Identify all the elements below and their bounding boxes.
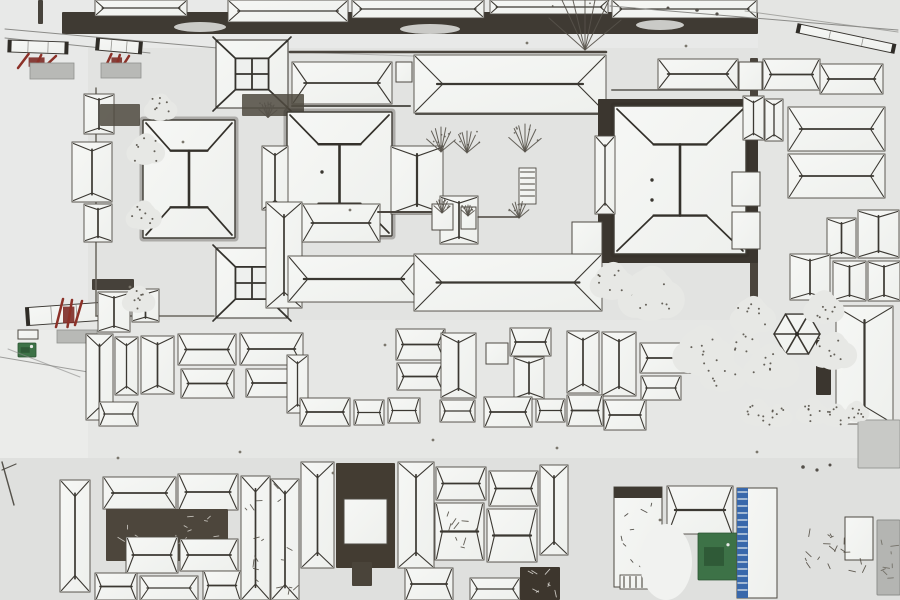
branch-speckle bbox=[828, 350, 830, 352]
branch-speckle bbox=[829, 411, 831, 413]
snow-patch bbox=[400, 24, 460, 34]
footprint bbox=[432, 439, 435, 442]
twig-dot bbox=[467, 144, 469, 146]
twig-dot bbox=[459, 141, 461, 143]
house-roof bbox=[180, 539, 238, 571]
branch-speckle bbox=[830, 355, 832, 357]
house-roof bbox=[95, 573, 137, 600]
ellipse bbox=[636, 20, 684, 30]
footprint bbox=[129, 286, 132, 289]
footprint bbox=[239, 451, 242, 454]
rect bbox=[486, 343, 508, 364]
branch-speckle bbox=[713, 380, 715, 382]
rect bbox=[101, 63, 141, 78]
branch-speckle bbox=[703, 362, 705, 364]
branch-speckle bbox=[702, 354, 704, 356]
canopy bbox=[819, 337, 837, 355]
rect bbox=[38, 0, 43, 24]
house-roof bbox=[103, 477, 176, 509]
house-roof bbox=[567, 395, 603, 426]
house-roof bbox=[300, 398, 350, 426]
twig-dot bbox=[269, 107, 271, 109]
footprint bbox=[685, 45, 688, 48]
east-hall-porch-roof bbox=[595, 136, 615, 214]
branch-speckle bbox=[852, 408, 854, 410]
twig bbox=[667, 7, 670, 10]
rect bbox=[732, 212, 760, 249]
branch-speckle bbox=[772, 353, 774, 355]
branch-speckle bbox=[753, 371, 755, 373]
branch-speckle bbox=[758, 312, 760, 314]
twig bbox=[829, 464, 832, 467]
twig-dot bbox=[444, 136, 446, 138]
house-roof bbox=[140, 576, 198, 600]
twig-dot bbox=[463, 207, 465, 209]
branch-speckle bbox=[833, 408, 835, 410]
branch-speckle bbox=[745, 336, 747, 338]
branch-speckle bbox=[819, 410, 821, 412]
branch-speckle bbox=[816, 315, 818, 317]
branch-speckle bbox=[734, 347, 736, 349]
twig-dot bbox=[461, 205, 463, 207]
house-roof bbox=[732, 172, 760, 206]
snow-dot bbox=[30, 345, 33, 348]
house-roof bbox=[484, 397, 532, 427]
snow-patch bbox=[174, 22, 226, 32]
dot bbox=[695, 8, 699, 12]
gray-structure bbox=[877, 520, 900, 595]
snow-mound bbox=[640, 524, 692, 600]
house-roof bbox=[602, 332, 636, 396]
branch-speckle bbox=[808, 405, 810, 407]
twig bbox=[715, 12, 718, 15]
line bbox=[204, 521, 207, 522]
dot bbox=[526, 42, 529, 45]
branch-speckle bbox=[152, 98, 154, 100]
long-hall-roof bbox=[414, 254, 602, 311]
branch-speckle bbox=[737, 307, 739, 309]
branch-speckle bbox=[614, 274, 616, 276]
branch-speckle bbox=[598, 282, 600, 284]
footprint bbox=[556, 447, 559, 450]
branch-speckle bbox=[747, 411, 749, 413]
hall-roof bbox=[658, 59, 738, 89]
house-roof bbox=[398, 462, 434, 568]
canopy bbox=[738, 301, 756, 319]
branch-speckle bbox=[136, 290, 138, 292]
house-roof bbox=[540, 465, 568, 555]
branch-speckle bbox=[136, 308, 138, 310]
branch-speckle bbox=[848, 417, 850, 419]
dot bbox=[685, 45, 688, 48]
branch-speckle bbox=[746, 311, 748, 313]
twig-dot bbox=[514, 210, 516, 212]
branch-speckle bbox=[837, 340, 839, 342]
branch-speckle bbox=[711, 339, 713, 341]
house-roof bbox=[868, 261, 900, 301]
house-roof bbox=[115, 337, 138, 395]
branch-speckle bbox=[751, 338, 753, 340]
dark-roof bbox=[520, 567, 560, 600]
dot bbox=[667, 7, 670, 10]
wall-segment bbox=[92, 279, 134, 290]
small-roof bbox=[739, 62, 762, 90]
shed bbox=[352, 562, 372, 586]
branch-speckle bbox=[860, 413, 862, 415]
house-roof bbox=[178, 474, 238, 510]
rect bbox=[64, 42, 68, 54]
branch-speckle bbox=[708, 370, 710, 372]
branch-speckle bbox=[840, 358, 842, 360]
house-roof bbox=[487, 509, 537, 562]
house-roof bbox=[126, 537, 178, 573]
footprint bbox=[349, 209, 352, 212]
dot bbox=[117, 457, 120, 460]
roof-edge bbox=[614, 487, 662, 498]
branch-speckle bbox=[818, 337, 820, 339]
dot bbox=[815, 468, 818, 471]
branch-speckle bbox=[809, 420, 811, 422]
dot bbox=[829, 464, 832, 467]
branch-speckle bbox=[715, 385, 717, 387]
house-roof bbox=[765, 99, 783, 141]
rect bbox=[344, 499, 387, 544]
branch-speckle bbox=[764, 323, 766, 325]
branch-speckle bbox=[166, 101, 168, 103]
house-roof bbox=[436, 467, 486, 500]
branch-speckle bbox=[762, 415, 764, 417]
house-roof bbox=[827, 218, 856, 258]
branch-speckle bbox=[840, 419, 842, 421]
branch-speckle bbox=[822, 306, 824, 308]
utility-pole bbox=[38, 0, 43, 24]
house-roof bbox=[743, 96, 764, 140]
dot bbox=[332, 472, 335, 475]
rect bbox=[737, 488, 748, 598]
house-roof bbox=[178, 334, 236, 365]
branch-speckle bbox=[750, 303, 752, 305]
branch-speckle bbox=[144, 212, 146, 214]
rect bbox=[8, 40, 12, 52]
flat-roof-building bbox=[858, 420, 900, 468]
line bbox=[462, 521, 468, 522]
long-hall-roof bbox=[288, 256, 420, 302]
east-hall-roof bbox=[612, 104, 748, 256]
branch-speckle bbox=[827, 411, 829, 413]
branch-speckle bbox=[808, 409, 810, 411]
house-roof bbox=[567, 331, 599, 393]
house-roof bbox=[60, 480, 90, 592]
twig bbox=[815, 468, 818, 471]
twig-dot bbox=[537, 139, 539, 141]
house-roof bbox=[514, 357, 544, 399]
dot bbox=[556, 447, 559, 450]
branch-speckle bbox=[825, 309, 827, 311]
roof-finial bbox=[650, 178, 653, 181]
hall-roof bbox=[788, 107, 885, 151]
twig-dot bbox=[447, 207, 449, 209]
branch-speckle bbox=[745, 350, 747, 352]
branch-speckle bbox=[158, 102, 160, 104]
tiled-roof bbox=[271, 479, 299, 600]
long-hall-roof bbox=[414, 55, 606, 113]
side-hall-roof bbox=[84, 204, 112, 242]
house-roof bbox=[397, 363, 443, 390]
gate-platform bbox=[30, 63, 74, 79]
branch-speckle bbox=[139, 209, 141, 211]
bushes bbox=[100, 104, 140, 126]
twig-dot bbox=[471, 209, 473, 211]
twig-dot bbox=[448, 205, 450, 207]
twig-dot bbox=[517, 204, 519, 206]
house-roof bbox=[641, 376, 681, 400]
finial bbox=[795, 332, 799, 336]
branch-speckle bbox=[703, 351, 705, 353]
branch-speckle bbox=[639, 307, 641, 309]
branch-speckle bbox=[762, 420, 764, 422]
branch-speckle bbox=[139, 299, 141, 301]
branch-speckle bbox=[810, 414, 812, 416]
footprint bbox=[526, 42, 529, 45]
side-hall-roof bbox=[72, 142, 112, 202]
branch-speckle bbox=[136, 144, 138, 146]
branch-speckle bbox=[829, 414, 831, 416]
branch-speckle bbox=[819, 316, 821, 318]
branch-speckle bbox=[819, 345, 821, 347]
branch-speckle bbox=[168, 110, 170, 112]
canopy bbox=[708, 359, 726, 377]
branch-speckle bbox=[666, 303, 668, 305]
twig-dot bbox=[529, 128, 531, 130]
branch-speckle bbox=[834, 306, 836, 308]
hall-roof bbox=[763, 59, 820, 90]
branch-speckle bbox=[134, 160, 136, 162]
dot bbox=[659, 519, 662, 522]
branch-speckle bbox=[701, 345, 703, 347]
twig-dot bbox=[521, 204, 523, 206]
rect bbox=[858, 420, 900, 468]
hall-roof bbox=[820, 64, 883, 94]
twig-dot bbox=[589, 2, 591, 4]
branch-speckle bbox=[716, 359, 718, 361]
tiled-roof bbox=[435, 503, 484, 560]
branch-speckle bbox=[747, 413, 749, 415]
twig-dot bbox=[442, 204, 444, 206]
branch-speckle bbox=[853, 416, 855, 418]
branch-speckle bbox=[155, 160, 157, 162]
branch-speckle bbox=[140, 294, 142, 296]
footprint bbox=[332, 472, 335, 475]
aerial-photo-canvas bbox=[0, 0, 900, 600]
house-roof bbox=[732, 212, 760, 249]
rect bbox=[0, 330, 88, 458]
branch-speckle bbox=[137, 146, 139, 148]
red-gate-roof bbox=[8, 40, 68, 54]
house-roof bbox=[181, 369, 234, 398]
roof-finial bbox=[650, 198, 653, 201]
dot bbox=[756, 451, 759, 454]
branch-speckle bbox=[599, 275, 601, 277]
small-structure bbox=[18, 330, 38, 339]
rect bbox=[18, 330, 38, 339]
house-roof bbox=[354, 400, 384, 425]
branch-speckle bbox=[862, 416, 864, 418]
twig-dot bbox=[519, 209, 521, 211]
twig-dot bbox=[265, 105, 267, 107]
branch-speckle bbox=[776, 413, 778, 415]
green-equipment bbox=[18, 343, 36, 357]
branch-speckle bbox=[137, 297, 139, 299]
branch-speckle bbox=[645, 304, 647, 306]
branch-speckle bbox=[668, 308, 670, 310]
rect bbox=[30, 63, 74, 79]
canopy bbox=[802, 401, 815, 414]
twig-dot bbox=[433, 141, 435, 143]
hall-roof bbox=[302, 204, 380, 242]
small-roof bbox=[572, 222, 602, 254]
small-roof bbox=[396, 62, 412, 82]
branch-speckle bbox=[833, 353, 835, 355]
house-roof bbox=[470, 578, 520, 600]
branch-speckle bbox=[155, 140, 157, 142]
twig-dot bbox=[476, 131, 478, 133]
rect bbox=[8, 40, 68, 54]
footprint bbox=[117, 457, 120, 460]
top-row-roof bbox=[612, 0, 757, 18]
twig-dot bbox=[508, 210, 510, 212]
branch-speckle bbox=[840, 423, 842, 425]
canopy bbox=[769, 407, 780, 418]
footprint bbox=[384, 344, 387, 347]
top-row-roof bbox=[95, 0, 187, 16]
branch-speckle bbox=[159, 97, 161, 99]
branch-speckle bbox=[751, 405, 753, 407]
branch-speckle bbox=[768, 424, 770, 426]
twig-dot bbox=[268, 103, 270, 105]
rect bbox=[21, 347, 30, 353]
twig-dot bbox=[459, 133, 461, 135]
branch-speckle bbox=[724, 370, 726, 372]
twig-dot bbox=[448, 133, 450, 135]
shed-roof bbox=[845, 517, 873, 560]
twig-dot bbox=[516, 128, 518, 130]
branch-speckle bbox=[749, 406, 751, 408]
rect bbox=[704, 547, 724, 566]
twig bbox=[695, 8, 699, 12]
branch-speckle bbox=[772, 417, 774, 419]
twig-dot bbox=[437, 141, 439, 143]
rect bbox=[572, 222, 602, 254]
branch-speckle bbox=[609, 289, 611, 291]
small-roof bbox=[486, 343, 508, 364]
footprint bbox=[182, 141, 185, 144]
house-roof bbox=[405, 568, 453, 600]
branch-speckle bbox=[151, 218, 153, 220]
branch-speckle bbox=[858, 409, 860, 411]
branch-speckle bbox=[804, 406, 806, 408]
house-roof bbox=[833, 261, 866, 301]
tiled-roof bbox=[241, 476, 270, 600]
branch-speckle bbox=[690, 346, 692, 348]
house-roof bbox=[396, 329, 445, 360]
twig-dot bbox=[441, 134, 443, 136]
rect bbox=[614, 487, 662, 498]
branch-speckle bbox=[136, 206, 138, 208]
twig-dot bbox=[443, 201, 445, 203]
branch-speckle bbox=[154, 150, 156, 152]
branch-speckle bbox=[735, 341, 737, 343]
house-roof bbox=[440, 400, 475, 422]
branch-speckle bbox=[742, 333, 744, 335]
branch-speckle bbox=[149, 222, 151, 224]
twig-dot bbox=[469, 210, 471, 212]
dot bbox=[320, 170, 323, 173]
branch-speckle bbox=[131, 215, 133, 217]
branch-speckle bbox=[663, 283, 665, 285]
branch-speckle bbox=[763, 364, 765, 366]
snow-patch bbox=[636, 20, 684, 30]
top-row-roof bbox=[228, 0, 348, 22]
snow-ground-left bbox=[0, 330, 88, 458]
ellipse bbox=[640, 524, 692, 600]
branch-speckle bbox=[758, 308, 760, 310]
house-roof bbox=[441, 333, 476, 398]
house-roof bbox=[141, 336, 174, 394]
top-row-roof bbox=[490, 0, 608, 14]
house-roof bbox=[604, 400, 646, 430]
house-roof bbox=[536, 399, 565, 422]
rect bbox=[396, 62, 412, 82]
dot bbox=[384, 344, 387, 347]
branch-speckle bbox=[748, 307, 750, 309]
dot bbox=[650, 198, 653, 201]
twig-dot bbox=[259, 102, 261, 104]
main-hall-west-annex-roof bbox=[262, 146, 288, 210]
roof-finial bbox=[320, 170, 323, 173]
dot bbox=[239, 451, 242, 454]
branch-speckle bbox=[143, 137, 145, 139]
branch-speckle bbox=[769, 362, 771, 364]
line bbox=[289, 587, 292, 588]
twig-dot bbox=[444, 200, 446, 202]
branch-speckle bbox=[831, 311, 833, 313]
twig-dot bbox=[478, 142, 480, 144]
ellipse bbox=[174, 22, 226, 32]
rect bbox=[100, 104, 140, 126]
dot bbox=[129, 286, 132, 289]
twig-dot bbox=[514, 132, 516, 134]
branch-speckle bbox=[618, 270, 620, 272]
rect bbox=[519, 168, 536, 204]
ellipse bbox=[400, 24, 460, 34]
gate-hall-roof bbox=[292, 62, 392, 104]
house-roof bbox=[344, 499, 387, 544]
line bbox=[187, 516, 193, 517]
twig-dot bbox=[271, 105, 273, 107]
twig-dot bbox=[552, 5, 554, 7]
stairs bbox=[519, 168, 536, 204]
branch-speckle bbox=[734, 373, 736, 375]
house-roof bbox=[510, 328, 551, 356]
green-tarp bbox=[698, 533, 738, 580]
blue-metal-roof-edge bbox=[737, 488, 748, 598]
canopy bbox=[132, 204, 146, 218]
branch-speckle bbox=[140, 217, 142, 219]
aerial-snow-temple-photo bbox=[0, 0, 900, 600]
branch-speckle bbox=[772, 410, 774, 412]
house-roof bbox=[301, 462, 334, 568]
branch-speckle bbox=[769, 369, 771, 371]
